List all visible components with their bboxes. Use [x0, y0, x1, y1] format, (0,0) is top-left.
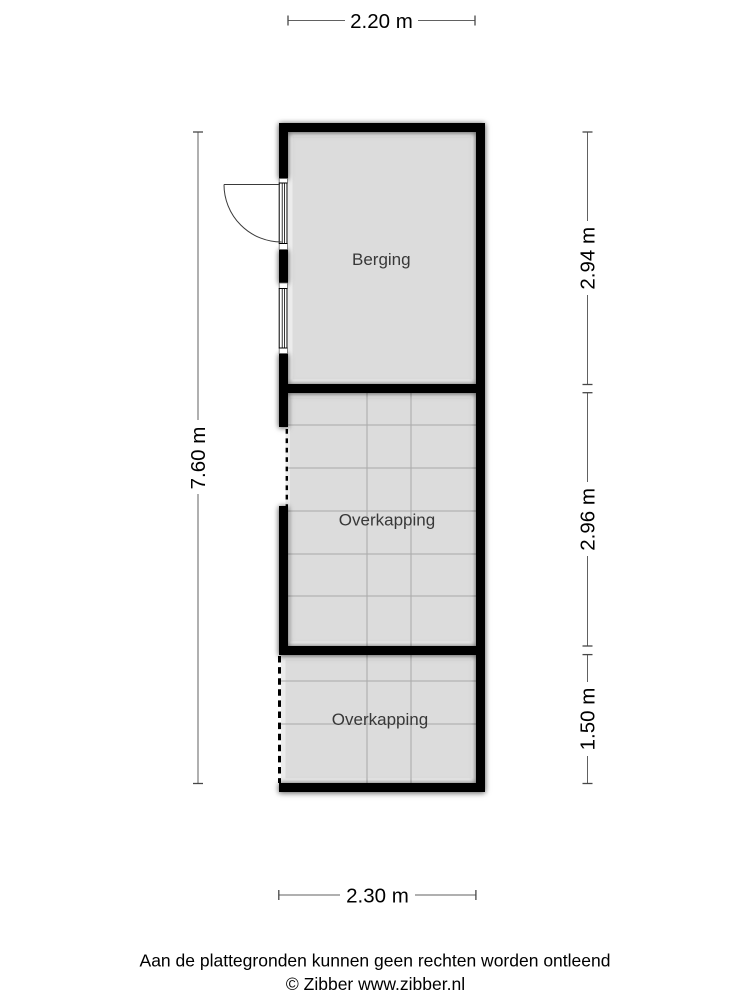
svg-text:Berging: Berging: [352, 250, 411, 269]
svg-text:2.94 m: 2.94 m: [577, 227, 600, 290]
svg-text:7.60 m: 7.60 m: [187, 427, 210, 490]
svg-text:© Zibber www.zibber.nl: © Zibber www.zibber.nl: [286, 974, 465, 994]
svg-text:Overkapping: Overkapping: [332, 710, 428, 729]
svg-text:Aan de plattegronden kunnen ge: Aan de plattegronden kunnen geen rechten…: [140, 951, 611, 971]
svg-text:Overkapping: Overkapping: [339, 511, 435, 530]
svg-text:1.50 m: 1.50 m: [577, 688, 600, 751]
svg-text:2.30 m: 2.30 m: [346, 885, 409, 908]
svg-text:2.96 m: 2.96 m: [577, 488, 600, 551]
svg-text:2.20 m: 2.20 m: [350, 10, 413, 33]
